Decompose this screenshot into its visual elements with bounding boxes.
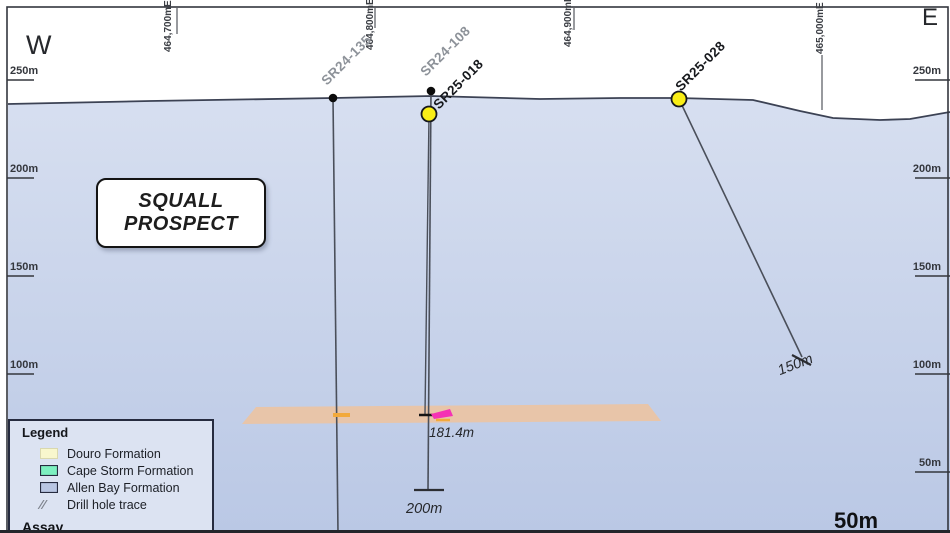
- prospect-callout: SQUALL PROSPECT: [96, 178, 266, 248]
- legend-label-cape-storm: Cape Storm Formation: [67, 464, 193, 478]
- drill-hole-trace-icon: ∕∕: [40, 498, 58, 511]
- allen-bay-formation-swatch-icon: [40, 482, 58, 493]
- elev-label-left-150: 150m: [10, 261, 38, 273]
- legend-label-drill-trace: Drill hole trace: [67, 498, 147, 512]
- legend-item-cape-storm: Cape Storm Formation: [22, 462, 212, 479]
- legend-item-allen-bay: Allen Bay Formation: [22, 479, 212, 496]
- assay-depth-label: 181.4m: [429, 426, 474, 440]
- legend-label-douro: Douro Formation: [67, 447, 161, 461]
- legend-title: Legend: [22, 425, 212, 440]
- eoh-label-200m: 200m: [406, 502, 442, 516]
- elev-label-left-200: 200m: [10, 163, 38, 175]
- cape-storm-formation-swatch-icon: [40, 465, 58, 476]
- legend-item-drill-trace: ∕∕ Drill hole trace: [22, 496, 212, 513]
- elev-label-left-250: 250m: [10, 65, 38, 77]
- elev-label-left-100: 100m: [10, 359, 38, 371]
- elev-label-right-100: 100m: [905, 359, 941, 371]
- easting-label-464700: 464,700mE: [163, 0, 175, 52]
- collar-dot-sr24-135: [329, 94, 338, 103]
- legend: Legend Douro Formation Cape Storm Format…: [8, 419, 214, 533]
- legend-label-allen-bay: Allen Bay Formation: [67, 481, 180, 495]
- elev-label-right-250: 250m: [905, 65, 941, 77]
- elev-label-right-200: 200m: [905, 163, 941, 175]
- direction-west-label: W: [26, 30, 51, 61]
- prospect-name-line2: PROSPECT: [124, 213, 238, 236]
- elev-label-right-50: 50m: [905, 457, 941, 469]
- easting-label-464900: 464,900mE: [563, 0, 575, 47]
- elev-label-right-150: 150m: [905, 261, 941, 273]
- douro-formation-swatch-icon: [40, 448, 58, 459]
- legend-item-douro: Douro Formation: [22, 445, 212, 462]
- collar-circle-sr25-028: [672, 92, 687, 107]
- direction-east-label: E: [922, 4, 938, 32]
- prospect-name-line1: SQUALL: [138, 190, 223, 213]
- easting-label-465000: 465,000mE: [815, 2, 827, 54]
- collar-circle-sr25-018: [422, 107, 437, 122]
- collar-dot-sr24-108: [427, 87, 436, 96]
- cross-section-figure: W E 464,700mE 464,800mE 464,900mE 465,00…: [0, 0, 950, 533]
